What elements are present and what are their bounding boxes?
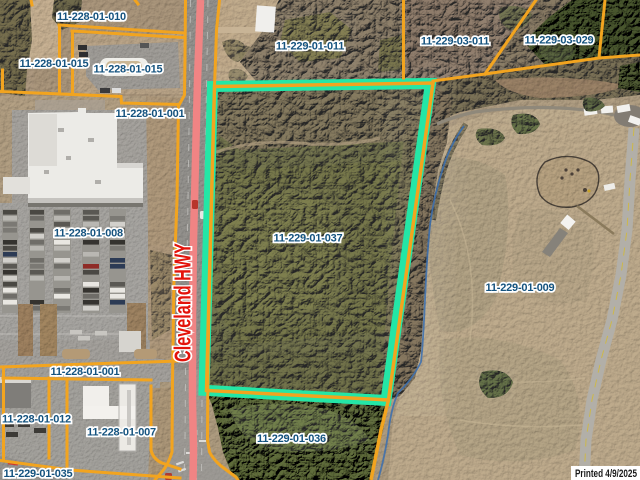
svg-text:11-229-03-029: 11-229-03-029: [525, 35, 594, 47]
svg-text:11-229-01-011: 11-229-01-011: [276, 41, 344, 53]
svg-text:11-229-03-011: 11-229-03-011: [421, 36, 489, 48]
svg-text:11-229-01-009: 11-229-01-009: [486, 282, 555, 294]
svg-text:11-228-01-001: 11-228-01-001: [51, 366, 120, 378]
svg-text:11-228-01-015: 11-228-01-015: [20, 58, 89, 70]
svg-text:Printed 4/9/2025: Printed 4/9/2025: [575, 468, 637, 480]
svg-text:11-228-01-012: 11-228-01-012: [2, 414, 71, 426]
svg-text:11-229-01-036: 11-229-01-036: [257, 433, 326, 445]
svg-text:11-228-01-008: 11-228-01-008: [54, 228, 123, 240]
svg-text:11-229-01-035: 11-229-01-035: [4, 468, 73, 480]
svg-text:Cleveland HWY: Cleveland HWY: [170, 243, 196, 362]
svg-text:11-229-01-037: 11-229-01-037: [274, 233, 343, 245]
svg-text:11-228-01-010: 11-228-01-010: [57, 11, 126, 23]
svg-text:11-228-01-015: 11-228-01-015: [94, 64, 163, 76]
svg-text:11-228-01-007: 11-228-01-007: [87, 427, 156, 439]
svg-text:11-228-01-001: 11-228-01-001: [116, 108, 185, 120]
